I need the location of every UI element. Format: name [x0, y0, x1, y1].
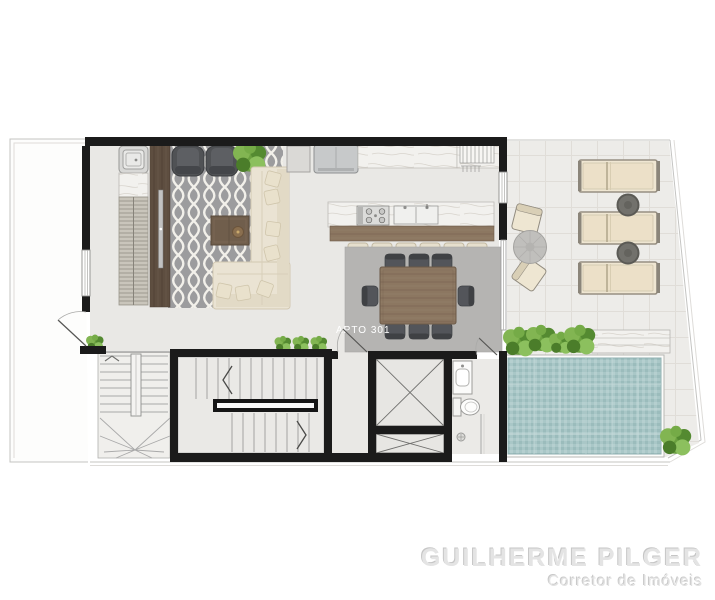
sliding-door-terrace — [501, 240, 506, 330]
pool — [505, 355, 664, 457]
dining-chair — [409, 323, 429, 339]
refrigerator — [314, 145, 358, 173]
dining-chair — [362, 286, 378, 306]
pool-area — [503, 325, 691, 457]
sun-lounger — [578, 212, 660, 244]
elevator-shaft — [376, 359, 444, 426]
cooktop — [357, 206, 389, 225]
planter-bush — [564, 325, 595, 355]
window-left — [82, 250, 90, 296]
sun-lounger — [578, 160, 660, 192]
dining-area: APTO 301 — [336, 247, 502, 352]
floor-plan-page: APTO 301 — [0, 0, 715, 600]
sun-lounger — [578, 262, 660, 294]
marble-bench — [592, 330, 670, 353]
counter-marble-left — [119, 173, 148, 197]
dining-table — [380, 267, 456, 324]
floor-plan-svg: APTO 301 — [0, 0, 715, 600]
elevators — [376, 359, 444, 453]
living-room — [119, 142, 290, 309]
sofa-back-right — [277, 169, 289, 307]
watermark-subtitle: Corretor de Imóveis — [421, 573, 703, 591]
dining-chair — [458, 286, 474, 306]
planter-bush — [660, 426, 691, 456]
vanity-sink — [453, 361, 472, 394]
terrace-table — [514, 231, 547, 264]
window-kitchen — [499, 172, 507, 203]
island-sink — [394, 204, 438, 224]
cabinet — [287, 146, 310, 172]
hall-floor — [332, 351, 368, 453]
watermark-title: GUILHERME PILGER — [421, 544, 703, 573]
terrace-chair — [511, 203, 543, 235]
coffee-table — [211, 216, 249, 245]
toilet — [453, 398, 480, 416]
armchair — [206, 146, 238, 176]
grill-knob — [135, 159, 138, 162]
dining-chair — [432, 323, 452, 339]
watermark: GUILHERME PILGER Corretor de Imóveis — [421, 544, 703, 591]
tv-logo-dot — [160, 228, 163, 231]
elevator-shaft — [376, 434, 444, 453]
armchair — [172, 146, 204, 176]
